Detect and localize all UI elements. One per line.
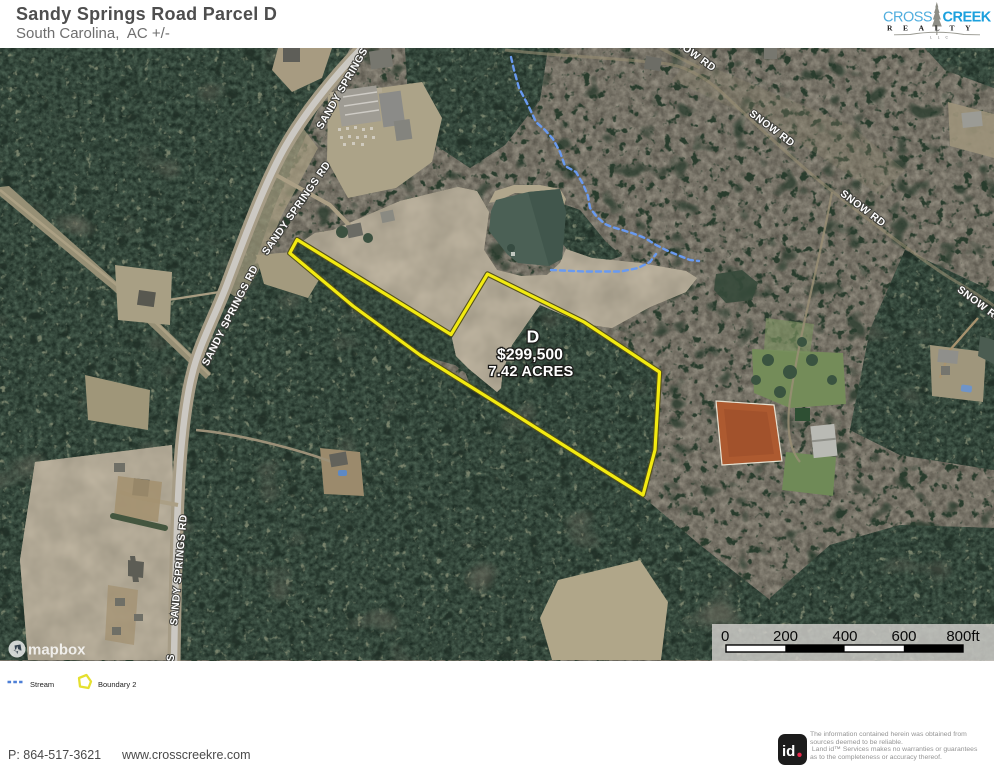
svg-text:REALTY: REALTY: [887, 24, 981, 33]
svg-text:200: 200: [773, 628, 798, 645]
svg-text:id: id: [782, 743, 795, 760]
svg-text:D: D: [527, 327, 540, 347]
svg-text:600: 600: [891, 628, 916, 645]
svg-text:$299,500: $299,500: [497, 347, 563, 364]
svg-text:mapbox: mapbox: [28, 642, 86, 659]
svg-text:800ft: 800ft: [946, 628, 980, 645]
svg-text:L L C: L L C: [930, 36, 950, 40]
svg-text:400: 400: [832, 628, 857, 645]
svg-text:0: 0: [721, 628, 729, 645]
svg-text:S: S: [165, 654, 178, 661]
svg-text:7.42 ACRES: 7.42 ACRES: [488, 364, 573, 380]
